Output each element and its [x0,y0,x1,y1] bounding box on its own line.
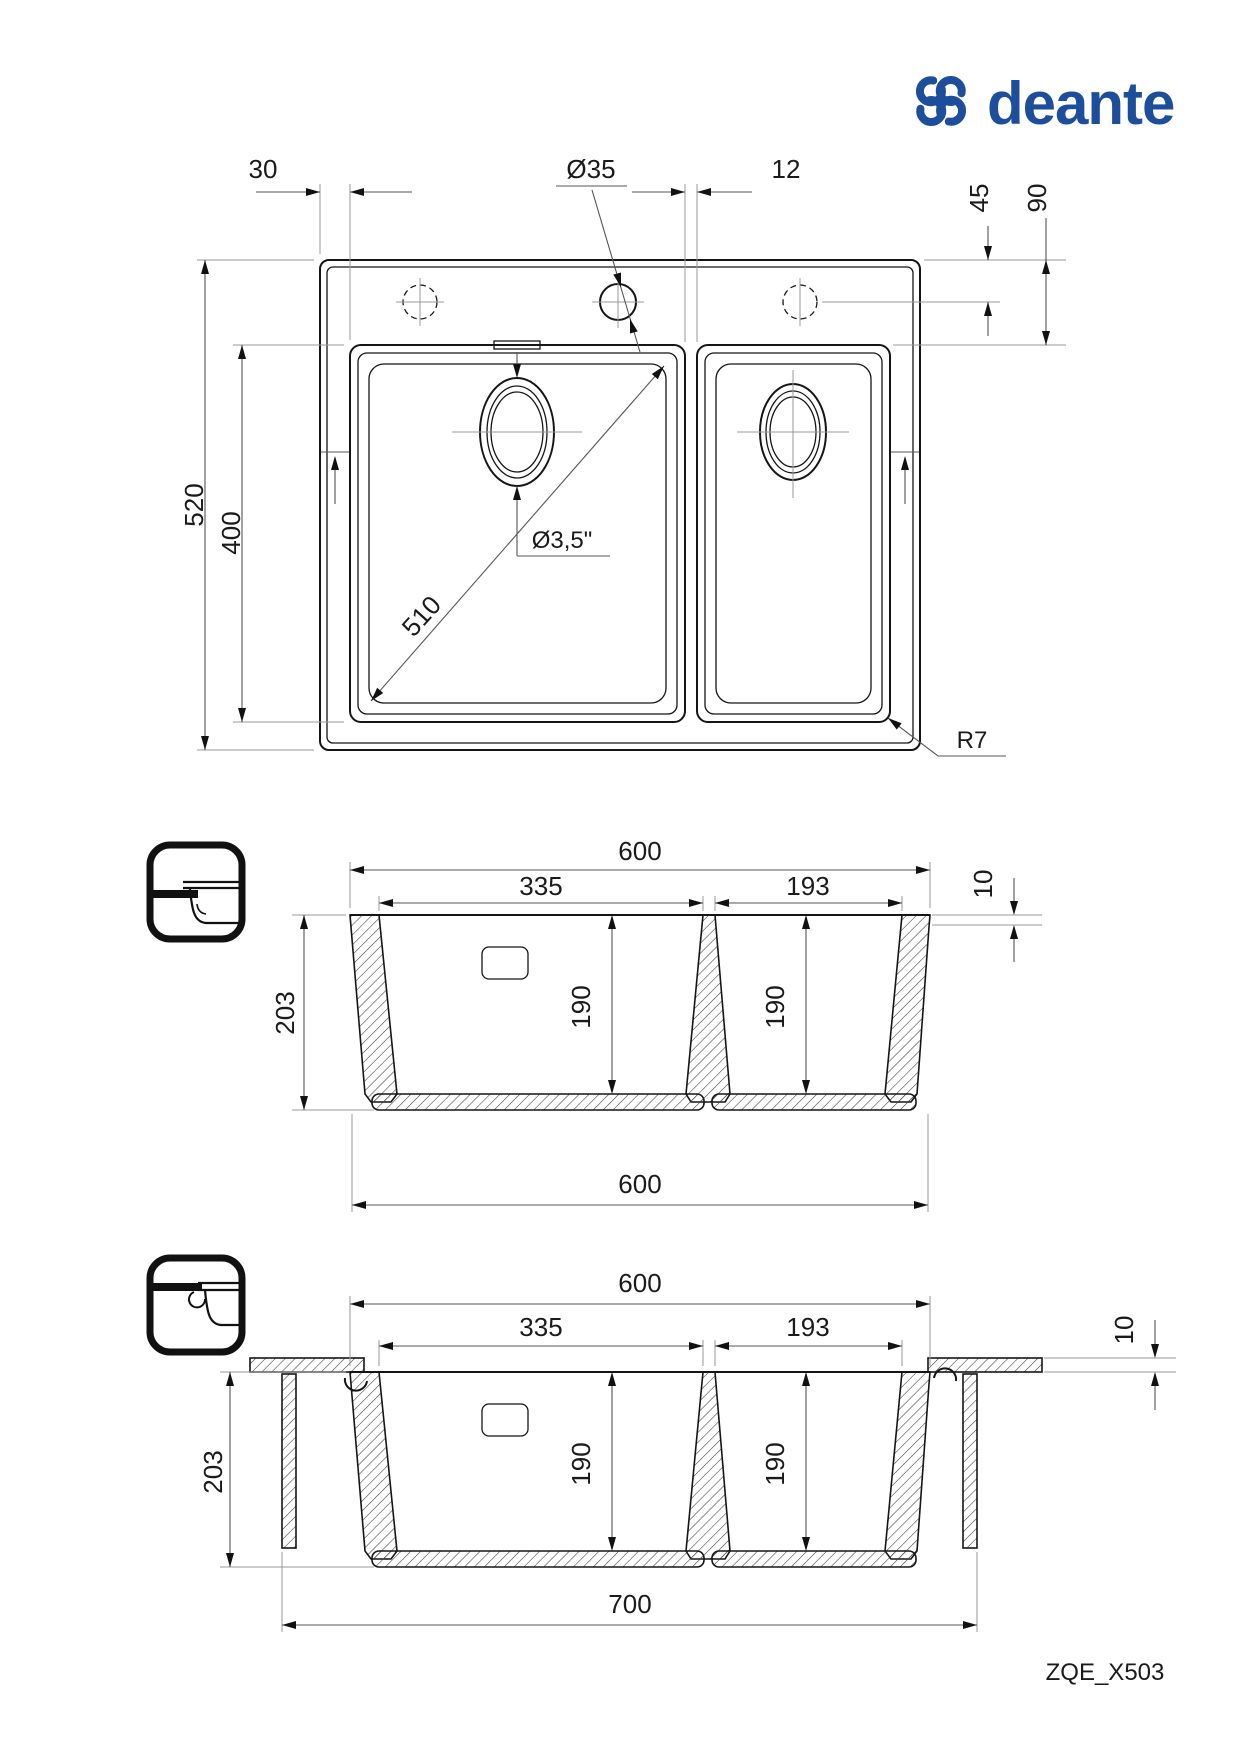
dim-label-600-top: 600 [618,836,661,866]
drain-small-bowl [737,370,849,498]
dim-label-o35: Ø35 [566,154,615,184]
dim-label-drain: Ø3,5" [532,527,593,554]
dim-label-12: 12 [772,154,801,184]
faucet-hole-right [783,278,817,326]
countertop-left [250,1358,364,1372]
dim-label-10-flush: 10 [1109,1316,1139,1345]
dim-label-190-main-inset: 190 [566,985,596,1028]
dim-label-193: 193 [786,871,829,901]
top-view: 30 Ø35 12 45 [179,154,1066,756]
brand-logo: deante [906,66,1175,137]
dim-label-400: 400 [216,511,246,554]
dim-label-203-inset: 203 [270,991,300,1034]
faucet-hole-left [396,278,444,326]
dim-label-30: 30 [249,154,278,184]
dim-label-r7: R7 [957,727,988,754]
plan-dim-faucet-hole: Ø35 [556,154,640,352]
section-flush-mount-view: 600 335 193 10 203 190 190 [150,1258,1176,1632]
dim-label-510: 510 [396,590,447,642]
plan-dim-drain: Ø3,5" [513,352,610,556]
dim-label-90: 90 [1022,184,1052,213]
dim-label-600-base: 600 [618,1169,661,1199]
dim-label-45: 45 [964,184,994,213]
brand-name: deante [987,70,1174,137]
dim-label-203-flush: 203 [198,1450,228,1493]
plan-dim-hole-offset: 45 90 [822,184,1066,345]
sink-dimension-drawing: deante [0,0,1241,1754]
model-code: ZQE_X503 [1046,1659,1165,1686]
plan-dim-bowl-gap: 12 [632,154,800,342]
mount-icon-inset [150,845,242,939]
clamp-mark-left [321,452,349,504]
cabinet-wall-right [963,1374,977,1548]
dim-label-193-flush: 193 [786,1312,829,1342]
section-top-mount-view: 600 335 193 10 203 190 190 [150,836,1042,1212]
technical-drawing-page: deante [0,0,1241,1754]
faucet-hole-center [592,276,644,328]
plan-dim-left-offset: 30 [249,154,412,340]
brand-logo-mark [906,66,977,137]
mount-icon-flush [150,1258,242,1352]
dim-label-600-flush: 600 [618,1268,661,1298]
dim-label-10-inset: 10 [968,870,998,899]
dim-label-700: 700 [608,1589,651,1619]
drain-main-bowl [452,378,582,486]
dim-label-335: 335 [519,871,562,901]
dim-label-190-small-flush: 190 [760,1442,790,1485]
dim-label-190-main-flush: 190 [566,1442,596,1485]
clamp-mark-right [891,452,919,504]
dim-label-190-small-inset: 190 [760,985,790,1028]
dim-label-520: 520 [179,483,209,526]
countertop-right [928,1358,1042,1372]
dim-label-335-flush: 335 [519,1312,562,1342]
cabinet-wall-left [282,1374,296,1548]
